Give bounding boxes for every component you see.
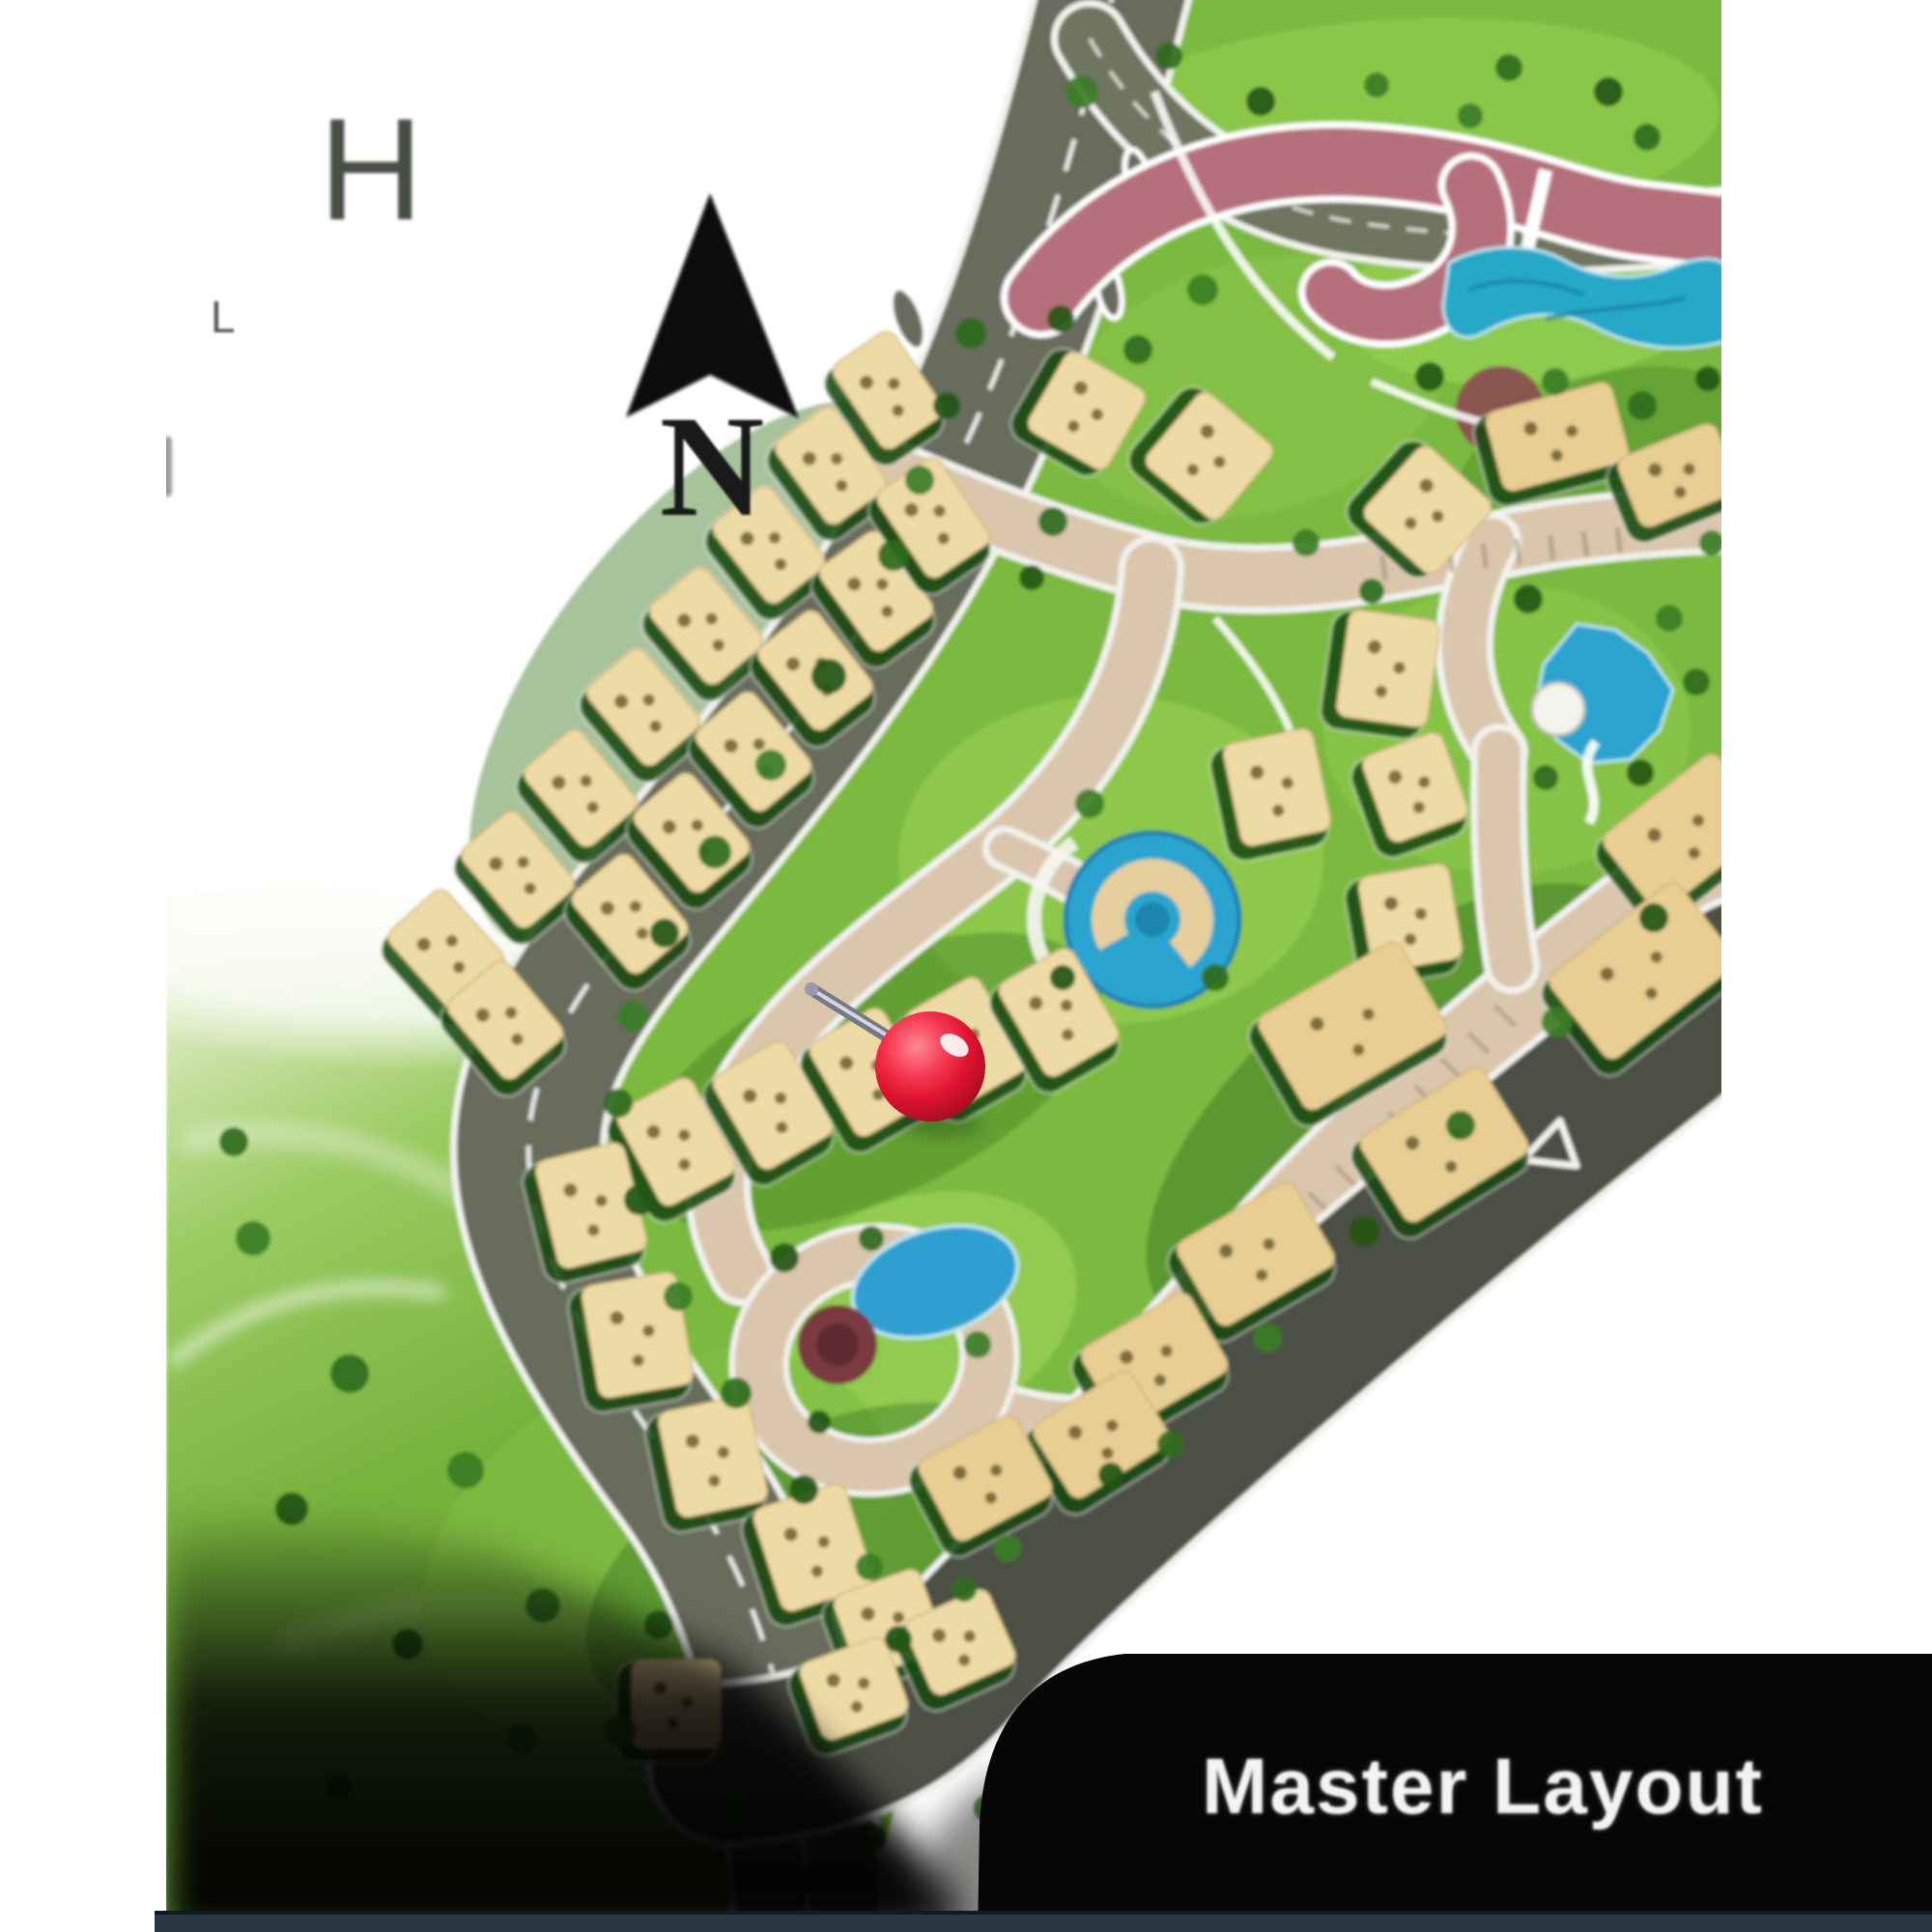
compass-north-arrow: [626, 193, 799, 418]
tree: [885, 1626, 912, 1653]
tree: [1695, 366, 1720, 391]
tree: [1293, 529, 1320, 556]
tree: [1533, 765, 1558, 790]
tree: [755, 750, 786, 781]
tree: [650, 919, 679, 948]
tree: [1514, 584, 1543, 613]
right-margin: [1721, 0, 1932, 1654]
tree: [1246, 87, 1275, 116]
tree: [1065, 75, 1098, 108]
tree: [1656, 605, 1683, 632]
tree: [808, 1410, 831, 1434]
tree: [964, 1331, 991, 1358]
tree: [770, 1243, 799, 1272]
bottom-strip: [155, 1915, 1932, 1932]
tree: [1458, 103, 1483, 128]
tree: [1098, 1463, 1123, 1488]
tree: [219, 1127, 248, 1156]
tree: [789, 1475, 818, 1504]
tree: [624, 1184, 655, 1215]
tree: [811, 659, 846, 694]
plaza-circle-inner: [816, 1323, 859, 1366]
tree: [1446, 1111, 1475, 1140]
tree: [905, 466, 934, 495]
villa-roof: [1335, 609, 1441, 728]
tree: [1699, 530, 1724, 555]
tree: [1639, 903, 1668, 932]
left-margin: [0, 0, 166, 1932]
tree: [878, 540, 909, 571]
tree: [1495, 54, 1522, 81]
master-layout-banner: [978, 1654, 1932, 1932]
villa: [1318, 607, 1440, 742]
tree: [698, 836, 731, 868]
tree: [721, 1378, 752, 1408]
tree: [1075, 789, 1104, 818]
tree: [1038, 507, 1067, 536]
pool-center: [1135, 902, 1170, 937]
tree: [1594, 77, 1623, 106]
compass: [626, 193, 799, 418]
banner-shape: [978, 1654, 1932, 1932]
tree: [952, 1577, 977, 1602]
tree: [1542, 1007, 1573, 1037]
tree: [617, 1001, 648, 1032]
tree: [859, 1226, 884, 1251]
tree: [1415, 362, 1444, 391]
tree: [856, 1553, 883, 1580]
tree: [447, 1452, 484, 1489]
pin-needle-tip: [805, 982, 818, 996]
master-plan-screenshot: H L N Master Layout: [0, 0, 1932, 1932]
tree: [1627, 759, 1654, 786]
tree: [1123, 335, 1152, 364]
tree: [994, 1535, 1021, 1562]
tree: [1187, 274, 1218, 305]
tree: [1349, 1216, 1379, 1247]
tree: [1542, 368, 1569, 395]
pin-ball[interactable]: [875, 1011, 985, 1122]
tree: [236, 1221, 270, 1256]
tree: [664, 1282, 693, 1311]
tree: [1202, 964, 1229, 991]
tree: [1155, 43, 1182, 70]
villa: [1207, 726, 1336, 864]
tree: [1359, 579, 1384, 604]
tree: [955, 318, 986, 349]
tree: [1628, 391, 1657, 420]
tree: [1683, 668, 1710, 696]
tree: [933, 392, 960, 419]
tree: [604, 1089, 633, 1118]
tree: [1157, 1431, 1184, 1458]
tree: [1050, 965, 1075, 990]
road-pool-south-leg: [1498, 752, 1512, 966]
tree: [1364, 72, 1389, 98]
tree: [1253, 1323, 1282, 1352]
fountain-circle: [1532, 683, 1584, 735]
bottom-edge-strip: [155, 1911, 1932, 1932]
tree: [1047, 305, 1074, 332]
tree: [330, 1354, 369, 1393]
tree: [1634, 124, 1661, 151]
tree: [1019, 565, 1044, 590]
site-map-svg: [0, 0, 1932, 1932]
